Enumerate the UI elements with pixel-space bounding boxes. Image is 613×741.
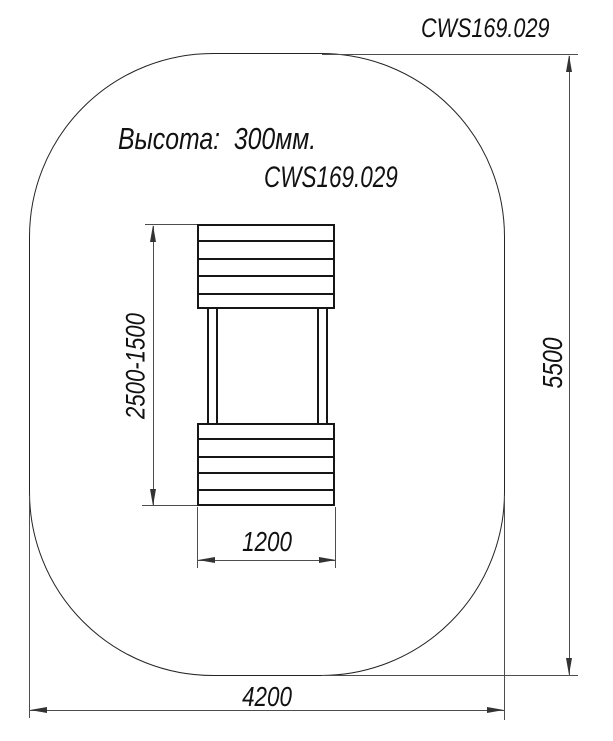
extension-line-deck-top [145, 224, 197, 225]
arrowhead-left-icon [198, 557, 215, 563]
dimension-line-zone-height [569, 56, 570, 675]
dimension-label-inner-width: 1200 [242, 528, 292, 556]
safety-zone-outline [29, 53, 505, 676]
arrowhead-down-icon [566, 658, 572, 675]
bottom-deck-slat-line [199, 472, 333, 474]
bottom-deck-slat-line [199, 489, 333, 491]
top-deck-slat-line [199, 293, 333, 295]
extension-line-top-right [322, 54, 578, 55]
dimension-label-height-range: 2500-1500 [123, 313, 150, 419]
left-post [207, 309, 218, 423]
arrowhead-down-icon [150, 489, 156, 506]
arrowhead-right-icon [487, 707, 504, 713]
arrowhead-up-icon [566, 55, 572, 72]
bottom-deck [197, 423, 335, 506]
dimension-label-zone-width: 4200 [242, 683, 292, 711]
bottom-deck-slat-line [199, 456, 333, 458]
extension-line-deck-bottom [142, 505, 197, 506]
top-deck-slat-line [199, 258, 333, 260]
arrowhead-left-icon [30, 707, 47, 713]
top-deck-slat-line [199, 275, 333, 277]
technical-drawing-canvas: CWS169.029 Высота: 300мм. CWS169.029 250… [0, 0, 613, 741]
arrowhead-right-icon [319, 557, 336, 563]
dimension-line-height-range [153, 226, 154, 506]
extension-line-bottom-right [322, 675, 578, 676]
extension-line-right-down [504, 496, 505, 720]
top-deck-slat-line [199, 240, 333, 242]
drawing-title: CWS169.029 [421, 15, 549, 42]
top-deck [197, 224, 335, 309]
extension-line-left-down [29, 496, 30, 718]
bottom-deck-slat-line [199, 438, 333, 440]
right-post [317, 309, 328, 423]
dimension-label-zone-height: 5500 [539, 337, 567, 388]
arrowhead-up-icon [150, 225, 156, 242]
dimension-line-inner-width [198, 560, 336, 561]
